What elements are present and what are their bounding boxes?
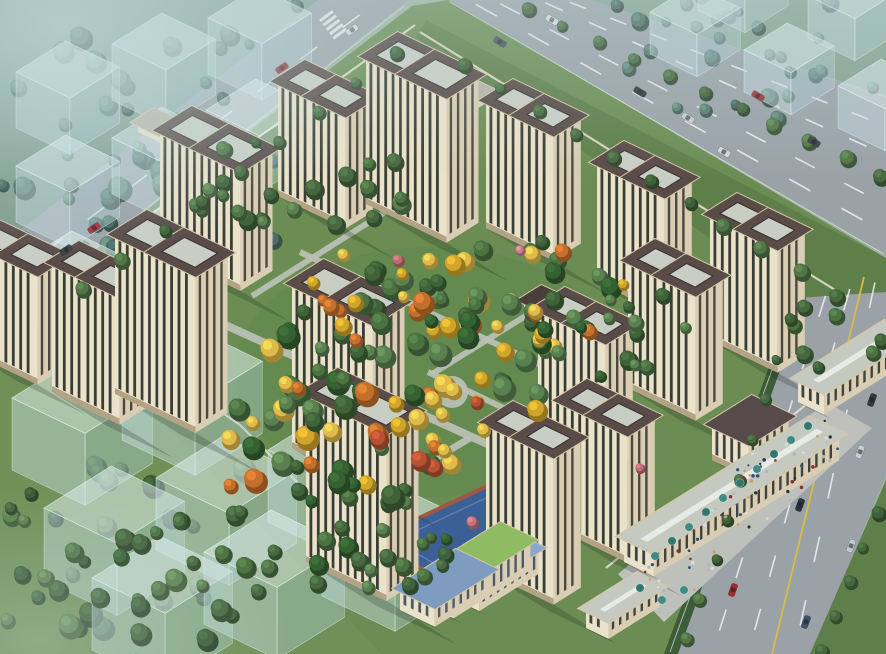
pedestrian: [785, 443, 788, 446]
patio-umbrella: [680, 586, 688, 594]
pedestrian: [794, 477, 797, 480]
pedestrian: [688, 549, 691, 552]
pedestrian: [689, 558, 692, 561]
pedestrian: [676, 549, 679, 552]
window-strip: [602, 424, 605, 544]
haze-horizon: [0, 0, 886, 180]
window-strip: [677, 288, 680, 406]
patio-umbrella: [658, 596, 666, 604]
window-strip: [601, 168, 604, 278]
patio-umbrella: [770, 450, 778, 458]
patio-umbrella: [736, 479, 744, 487]
pedestrian: [828, 459, 831, 462]
pedestrian: [647, 566, 650, 569]
pedestrian: [747, 464, 749, 466]
pedestrian: [657, 586, 659, 588]
pedestrian: [836, 447, 839, 450]
window-strip: [816, 391, 819, 405]
window-strip: [809, 387, 812, 401]
pedestrian: [720, 514, 722, 516]
patio-umbrella: [651, 552, 659, 560]
pedestrian: [824, 420, 826, 422]
tower-slab-front: [651, 253, 731, 420]
patio-umbrella: [719, 494, 727, 502]
window-strip: [507, 557, 509, 578]
pedestrian: [756, 474, 760, 478]
window-strip: [586, 416, 589, 536]
pedestrian: [657, 579, 660, 582]
window-strip: [514, 553, 516, 574]
pedestrian: [711, 567, 714, 570]
window-strip: [564, 451, 566, 591]
window-strip: [736, 230, 739, 346]
window-strip: [628, 542, 631, 558]
window-strip: [608, 171, 611, 281]
pedestrian: [754, 491, 757, 494]
pedestrian: [800, 486, 804, 490]
pedestrian: [800, 464, 803, 467]
pedestrian: [737, 523, 739, 525]
pedestrian: [707, 563, 710, 566]
patio-umbrella: [787, 436, 795, 444]
patio-umbrella: [636, 584, 644, 592]
patio-umbrella: [804, 422, 812, 430]
pedestrian: [735, 504, 737, 506]
window-strip: [699, 293, 701, 412]
pedestrian: [747, 496, 749, 498]
pedestrian: [774, 459, 777, 462]
pedestrian: [703, 523, 707, 527]
pedestrian: [715, 508, 717, 510]
pedestrian: [743, 470, 745, 472]
window-strip: [781, 247, 783, 364]
window-strip: [759, 242, 762, 358]
pedestrian: [747, 525, 750, 528]
pedestrian: [792, 452, 796, 456]
window-strip: [713, 284, 715, 403]
window-strip: [543, 453, 546, 593]
window-strip: [615, 175, 618, 285]
pedestrian: [742, 477, 745, 480]
pedestrian: [644, 571, 647, 574]
patio-umbrella: [753, 465, 761, 473]
aerial-architectural-render: [0, 0, 886, 654]
window-strip: [571, 446, 573, 586]
window-strip: [788, 243, 790, 360]
pedestrian: [816, 435, 819, 438]
pedestrian: [751, 453, 754, 456]
pedestrian: [750, 479, 754, 483]
pedestrian: [811, 465, 815, 469]
pedestrian: [802, 451, 805, 454]
pedestrian: [765, 470, 768, 473]
pedestrian: [748, 474, 751, 477]
window-strip: [670, 284, 673, 402]
masterplan-scene: [0, 0, 886, 654]
window-strip: [500, 562, 502, 583]
pedestrian: [736, 468, 739, 471]
window-strip: [730, 437, 733, 463]
pedestrian: [648, 579, 650, 581]
pedestrian: [790, 480, 794, 484]
pedestrian: [712, 550, 715, 553]
window-strip: [767, 245, 770, 361]
pedestrian: [751, 474, 755, 478]
window-strip: [642, 549, 645, 565]
haze-southwest: [0, 380, 460, 654]
window-strip: [795, 238, 797, 355]
patio-umbrella: [685, 523, 693, 531]
patio-umbrella: [668, 537, 676, 545]
pedestrian: [711, 509, 713, 511]
pedestrian: [693, 529, 695, 531]
pedestrian: [706, 568, 709, 571]
window-strip: [522, 548, 524, 569]
window-strip: [595, 421, 598, 541]
pedestrian: [829, 435, 832, 438]
pedestrian: [688, 566, 691, 569]
window-strip: [728, 227, 731, 343]
pedestrian: [739, 513, 742, 516]
pedestrian: [759, 463, 761, 465]
pedestrian: [732, 492, 735, 495]
window-strip: [723, 433, 726, 459]
window-strip: [623, 178, 626, 288]
patio-umbrella: [702, 508, 710, 516]
pedestrian: [729, 495, 732, 498]
window-strip: [609, 428, 612, 548]
pedestrian: [691, 561, 695, 565]
pedestrian: [786, 490, 789, 493]
pedestrian: [724, 515, 727, 518]
window-strip: [752, 238, 755, 354]
pedestrian: [745, 511, 748, 514]
pedestrian: [720, 522, 722, 524]
pedestrian: [826, 441, 828, 443]
window-strip: [802, 384, 805, 398]
window-strip: [685, 291, 688, 409]
pedestrian: [651, 563, 654, 566]
window-strip: [557, 455, 559, 595]
pedestrian: [804, 460, 807, 463]
window-strip: [716, 430, 719, 456]
window-strip: [635, 545, 638, 561]
pedestrian: [766, 517, 769, 520]
pedestrian: [693, 588, 695, 590]
pedestrian: [822, 455, 825, 458]
pedestrian: [662, 589, 665, 592]
pedestrian: [696, 538, 699, 541]
pedestrian: [789, 499, 791, 501]
pedestrian: [762, 458, 766, 462]
pedestrian: [825, 437, 828, 440]
window-strip: [745, 235, 748, 351]
window-strip: [706, 289, 708, 408]
